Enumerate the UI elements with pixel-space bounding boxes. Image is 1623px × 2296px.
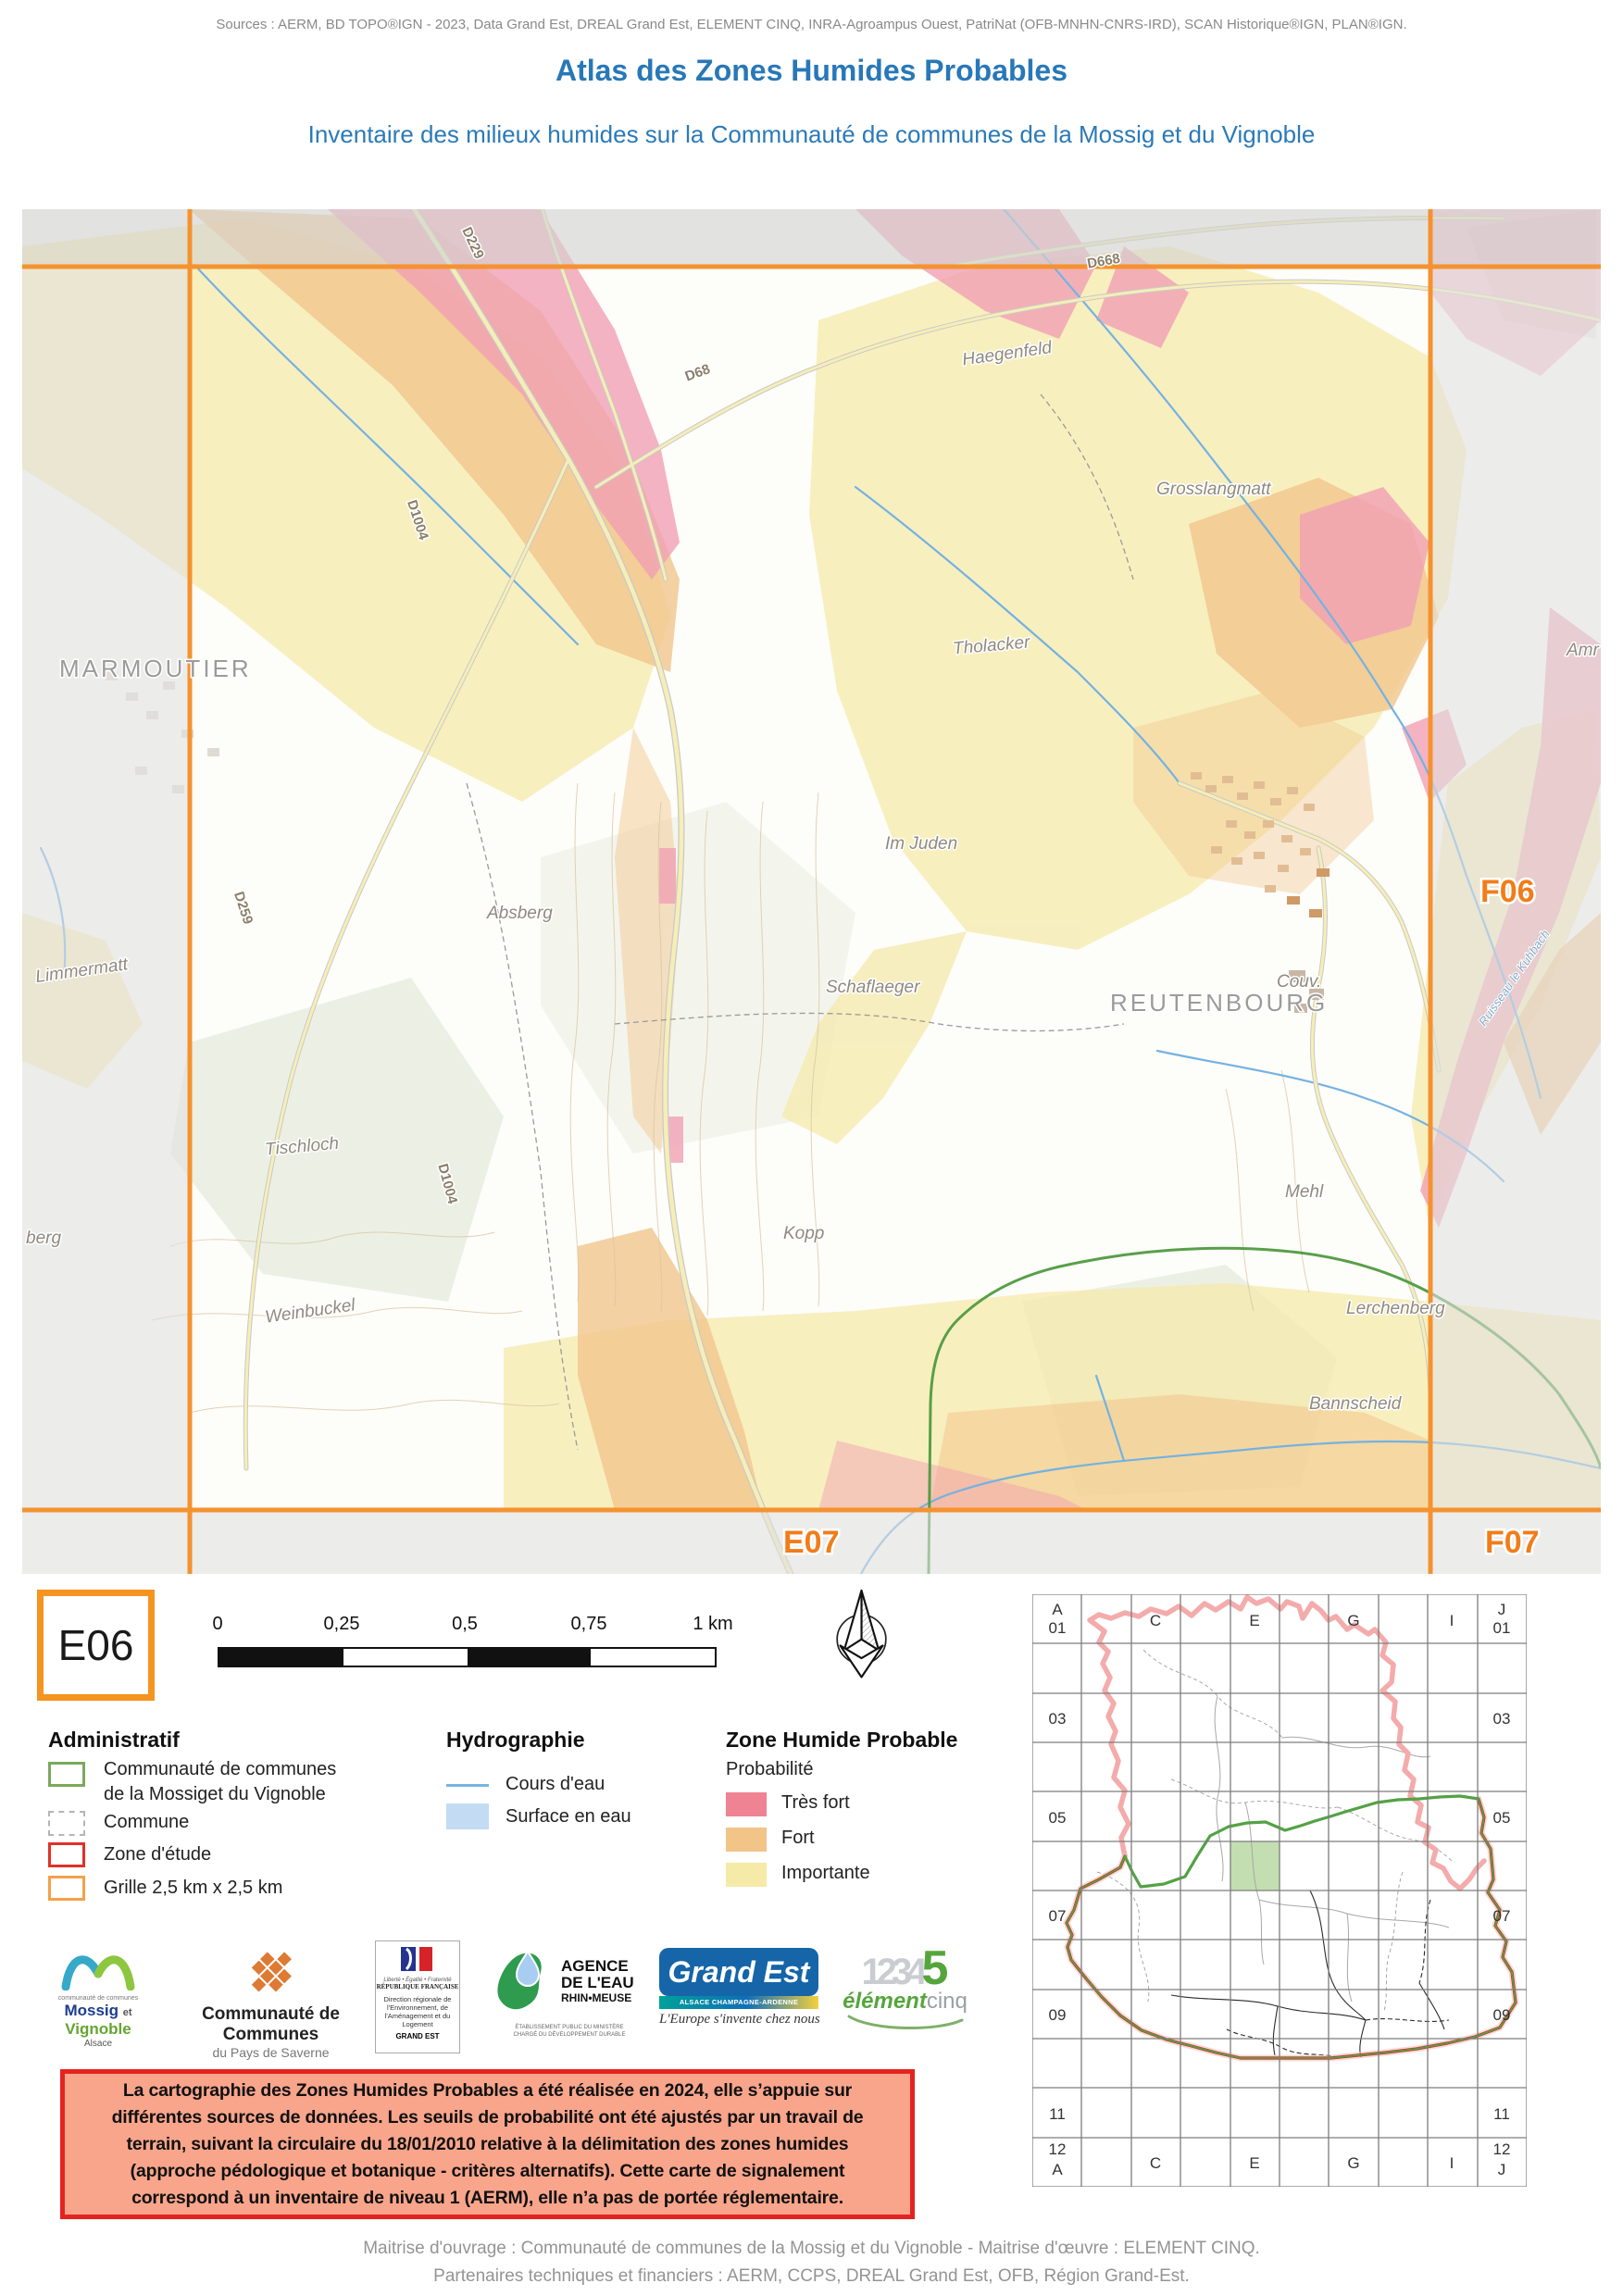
legend-swatch-zone-etude: [48, 1842, 85, 1867]
grand-est-name: Grand Est: [668, 1955, 810, 1990]
saverne-line2: du Pays de Saverne: [171, 2045, 370, 2060]
grand-est-tagline: L'Europe s'invente chez nous: [659, 2012, 820, 2028]
agence-tiny1: ÉTABLISSEMENT PUBLIC DU MINISTÈRE: [515, 2025, 623, 2030]
place-label: Kopp: [783, 1224, 824, 1243]
legend-title-zhp: Zone Humide Probable: [726, 1728, 957, 1753]
agence-l1: AGENCE: [561, 1958, 634, 1975]
legend-label-fort: Fort: [781, 1828, 815, 1849]
overview-row-label: 07: [1493, 1907, 1511, 1925]
overview-corner-tl-num: 01: [1049, 1619, 1067, 1637]
overview-grid-map: A 01 J 01 C E G I 03 05 07 09 11 03 05 0…: [1032, 1594, 1527, 2187]
overview-col-label: E: [1249, 1612, 1259, 1629]
place-label: berg: [26, 1229, 61, 1248]
mossig-name1: Mossig: [64, 2002, 119, 2019]
logo-pays-de-saverne: Communauté de Communes du Pays de Savern…: [171, 1946, 370, 2060]
legend-label-tres-fort: Très fort: [781, 1792, 850, 1814]
overview-corner-tl-letter: A: [1052, 1601, 1063, 1618]
warning-box: La cartographie des Zones Humides Probab…: [60, 2069, 915, 2219]
legend-label-cc-2: de la Mossiget du Vignoble: [104, 1784, 326, 1805]
element5-five: 5: [922, 1941, 949, 1995]
page-subtitle: Inventaire des milieux humides sur la Co…: [0, 120, 1623, 149]
overview-row-label: 09: [1493, 2006, 1511, 2024]
dreal-text: Direction régionale de l'Environnement, …: [376, 1995, 459, 2028]
dreal-grand-est: GRAND EST: [376, 2032, 459, 2040]
mossig-region: Alsace: [33, 2039, 163, 2049]
sheet-id-box: E06: [37, 1590, 155, 1701]
legend-title-administratif: Administratif: [48, 1728, 180, 1753]
overview-row-label: 11: [1049, 2105, 1066, 2123]
legend-swatch-importante: [726, 1863, 767, 1887]
saverne-line1: Communauté de Communes: [171, 2004, 370, 2045]
grid-cell-label-f07: F07: [1485, 1525, 1540, 1560]
overview-row-label: 03: [1049, 1710, 1067, 1728]
mossig-et: et: [123, 2007, 132, 2018]
place-label: Schaflaeger: [826, 978, 920, 997]
place-label: Bannscheid: [1309, 1394, 1403, 1414]
overview-col-label: C: [1150, 2154, 1161, 2172]
rf-name: RÉPUBLIQUE FRANÇAISE: [376, 1983, 459, 1990]
main-map: MARMOUTIER REUTENBOURG Haegenfeld Grossl…: [22, 209, 1601, 1574]
legend-swatch-cours-eau: [446, 1784, 489, 1787]
legend-label-zone-etude: Zone d'étude: [104, 1844, 211, 1865]
saverne-logo-icon: [243, 1946, 299, 2000]
legend-label-cours-eau: Cours d'eau: [506, 1774, 605, 1795]
legend-swatch-surface-eau: [446, 1803, 489, 1829]
element5-name1: élément: [843, 1989, 927, 2014]
warning-line: La cartographie des Zones Humides Probab…: [123, 2078, 852, 2104]
overview-corner-br-num: 12: [1493, 2140, 1511, 2158]
legend-label-cc-1: Communauté de communes: [104, 1759, 336, 1780]
warning-line: différentes sources de données. Les seui…: [112, 2104, 864, 2131]
logo-agence-eau: AGENCE DE L'EAU RHIN•MEUSE ÉTABLISSEMENT…: [491, 1944, 648, 2039]
scale-bar: [218, 1647, 717, 1667]
scalebar-tick: 0,25: [324, 1614, 360, 1635]
warning-line: terrain, suivant la circulaire du 18/01/…: [127, 2131, 849, 2158]
footer-line-2: Partenaires techniques et financiers : A…: [0, 2266, 1623, 2287]
place-label: Grosslangmatt: [1156, 480, 1271, 499]
scalebar-tick: 0: [212, 1614, 222, 1635]
warning-line: correspond à un inventaire de niveau 1 (…: [131, 2185, 843, 2212]
mossig-name2: Vignoble: [65, 2020, 131, 2038]
legend-label-surface-eau: Surface en eau: [506, 1806, 631, 1828]
warning-line: (approche pédologique et botanique - cri…: [131, 2158, 845, 2185]
legend-label-importante: Importante: [781, 1863, 870, 1884]
overview-corner-br-letter: J: [1498, 2161, 1506, 2178]
overview-col-label: G: [1347, 2154, 1359, 2172]
overview-row-label: 11: [1493, 2105, 1510, 2123]
mossig-logo-icon: [33, 1942, 163, 1990]
overview-corner-bl-num: 12: [1049, 2140, 1067, 2158]
logo-element-cinq: 12345 élémentcinq: [838, 1940, 972, 2036]
scalebar-tick: 1 km: [693, 1614, 732, 1635]
overview-row-label: 05: [1049, 1809, 1067, 1827]
scalebar-tick: 0,75: [571, 1614, 607, 1635]
legend-swatch-fort: [726, 1828, 767, 1852]
overview-row-label: 07: [1049, 1907, 1067, 1925]
legend-label-grille: Grille 2,5 km x 2,5 km: [104, 1878, 282, 1899]
overview-row-label: 03: [1493, 1710, 1511, 1728]
grand-est-stripe: ALSACE CHAMPAGNE-ARDENNE LORRAINE: [659, 1996, 818, 2009]
place-label: Mehl: [1285, 1182, 1324, 1202]
place-label: Im Juden: [885, 834, 957, 854]
place-label: Amr: [1566, 641, 1600, 660]
place-label: Absberg: [486, 904, 553, 923]
sources-line: Sources : AERM, BD TOPO®IGN - 2023, Data…: [0, 17, 1623, 32]
north-arrow-icon: [822, 1585, 901, 1685]
sheet-id: E06: [58, 1620, 134, 1670]
legend-swatch-grille: [48, 1876, 85, 1901]
french-flag-icon: [397, 1945, 438, 1973]
place-label: MARMOUTIER: [59, 655, 252, 682]
overview-col-label: C: [1150, 1612, 1161, 1629]
overview-col-label: E: [1249, 2154, 1259, 2172]
overview-corner-bl-letter: A: [1052, 2161, 1063, 2178]
overview-row-label: 09: [1049, 2006, 1067, 2024]
overview-col-label: G: [1347, 1612, 1359, 1629]
legend-swatch-tres-fort: [726, 1792, 767, 1816]
legend-swatch-commune: [48, 1811, 85, 1836]
overview-corner-tr-num: 01: [1493, 1619, 1511, 1637]
element5-swoosh-icon: [845, 2015, 966, 2031]
overview-row-label: 05: [1493, 1809, 1511, 1827]
fade-top-band: [22, 209, 1601, 267]
legend-swatch-cc: [48, 1762, 85, 1787]
legend-subtitle-probabilite: Probabilité: [726, 1759, 814, 1780]
agence-l2: DE L'EAU: [561, 1975, 634, 1991]
grid-cell-label-e07: E07: [783, 1525, 840, 1560]
overview-col-label: I: [1450, 2154, 1454, 2172]
scalebar-tick: 0,5: [452, 1614, 478, 1635]
legend-label-commune: Commune: [104, 1812, 189, 1833]
logo-republique-francaise-dreal: Liberté • Égalité • Fraternité RÉPUBLIQU…: [375, 1940, 460, 2053]
footer-line-1: Maitrise d'ouvrage : Communauté de commu…: [0, 2239, 1623, 2259]
place-label: Couv.: [1277, 972, 1321, 992]
agence-eau-icon: [491, 1944, 557, 2018]
overview-corner-tr-letter: J: [1498, 1601, 1506, 1618]
legend-title-hydrographie: Hydrographie: [446, 1728, 585, 1753]
logo-grand-est: Grand Est ALSACE CHAMPAGNE-ARDENNE LORRA…: [659, 1948, 820, 2028]
element5-digits: 1234: [862, 1952, 922, 1992]
overview-col-label: I: [1450, 1612, 1454, 1629]
page-title: Atlas des Zones Humides Probables: [0, 54, 1623, 88]
place-label: REUTENBOURG: [1110, 989, 1328, 1017]
place-label: Lerchenberg: [1346, 1299, 1445, 1318]
agence-l3: RHIN•MEUSE: [561, 1991, 634, 2004]
logo-mossig-vignoble: communauté de communes Mossig et Vignobl…: [33, 1942, 163, 2049]
agence-tiny2: CHARGÉ DU DÉVELOPPEMENT DURABLE: [514, 2032, 626, 2038]
grid-cell-label-f06: F06: [1480, 874, 1535, 909]
element5-name2: cinq: [927, 1989, 968, 2014]
grand-est-block: Grand Est: [659, 1948, 818, 1996]
